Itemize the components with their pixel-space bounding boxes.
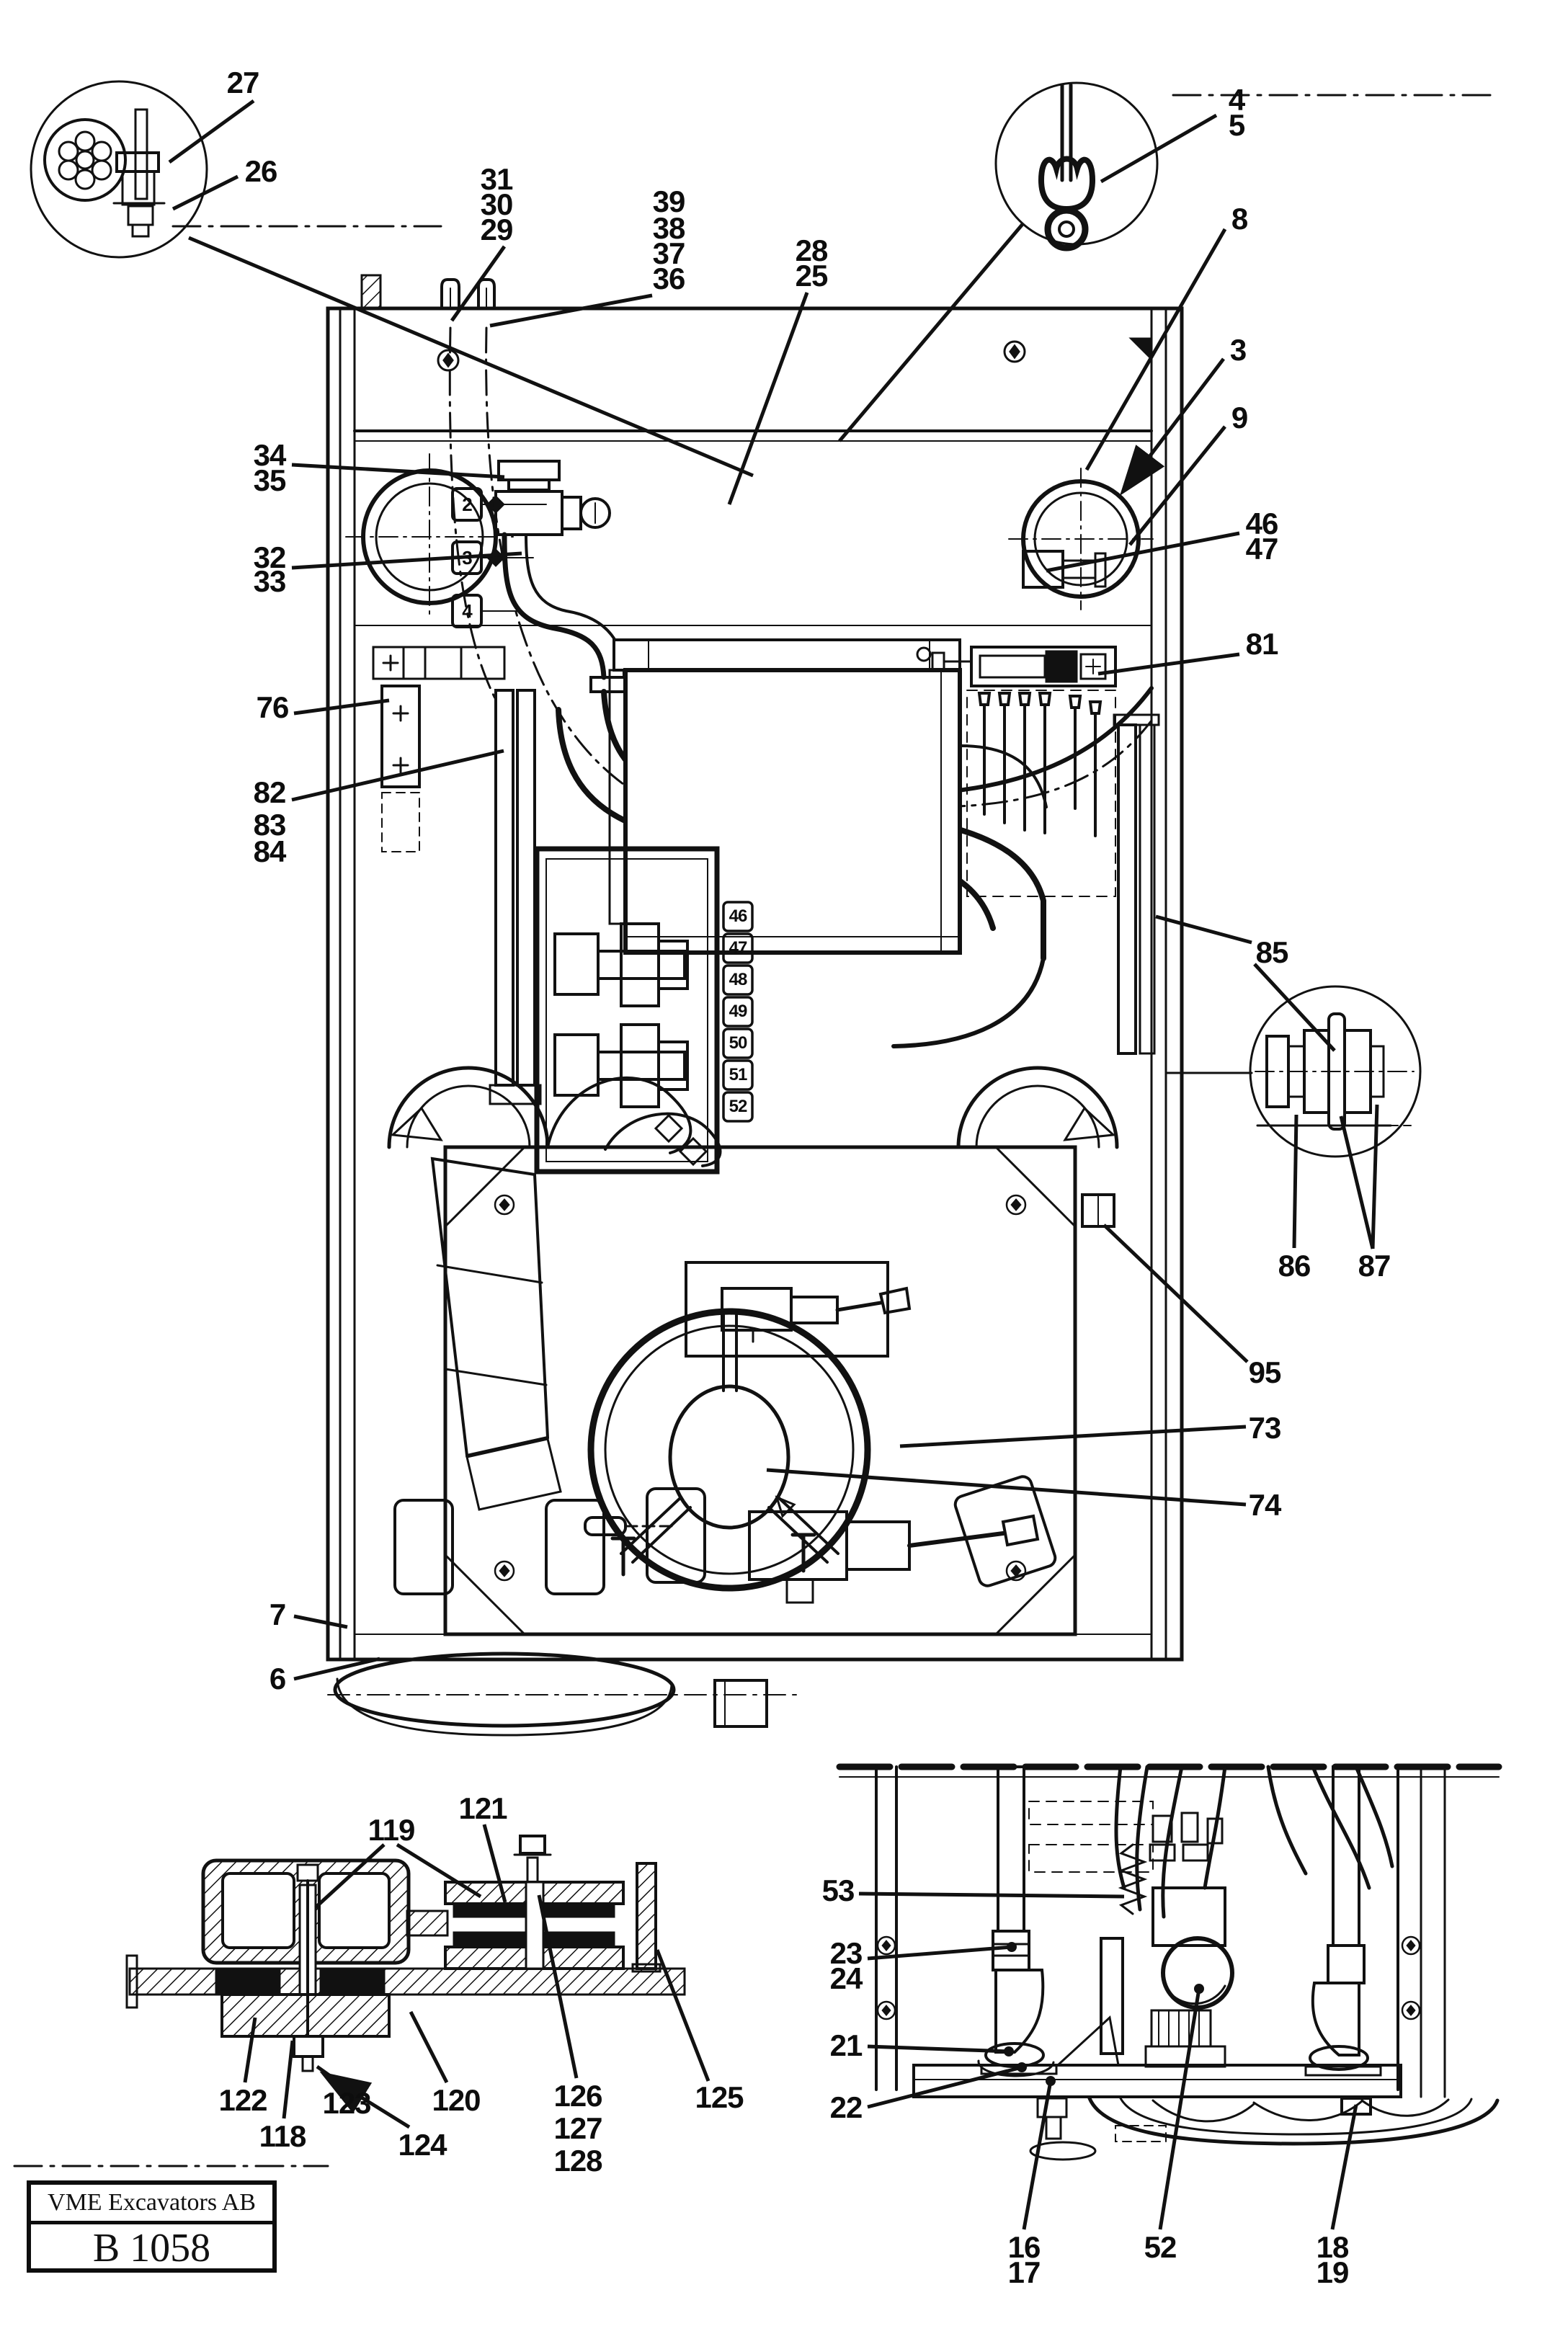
parts-diagram-page: 2726313029393837362825458393435464732338… [0,0,1568,2344]
leader-line [292,465,504,477]
callout-19: 19 [1317,2258,1349,2288]
leader-line [292,751,504,800]
callout-118: 118 [259,2121,306,2152]
callout-123: 123 [322,2088,370,2118]
leader-line [292,553,522,568]
callout-21: 21 [830,2031,863,2061]
callout-53: 53 [822,1876,855,1906]
callout-7: 7 [269,1600,285,1630]
callout-33: 33 [254,566,286,597]
callout-82: 82 [254,777,286,808]
company-name: VME Excavators AB [31,2185,272,2224]
callout-74: 74 [1249,1490,1281,1520]
callout-119: 119 [368,1815,415,1845]
leader-line [1294,1115,1296,1248]
port-number-3: 3 [462,548,471,567]
callout-128: 128 [553,2146,602,2176]
leader-line [484,1824,505,1902]
leader-dot [1007,1942,1017,1952]
leader-dot [1046,2076,1056,2086]
port-number-2: 2 [462,495,471,514]
leader-line [1101,115,1216,182]
leader-line [539,1895,576,2078]
leader-line [294,1616,347,1627]
callout-36: 36 [653,264,685,294]
leader-line [1160,1989,1199,2229]
leader-line [452,246,504,321]
leader-dot [1017,2062,1027,2072]
box-number-52: 52 [729,1098,747,1115]
leader-line [1024,2081,1051,2229]
callout-121: 121 [458,1793,507,1824]
leader-line [397,1845,481,1897]
leader-line [868,2067,1022,2107]
callout-124: 124 [398,2130,446,2160]
leader-line [1341,1116,1373,1249]
callout-22: 22 [830,2093,863,2123]
leader-line [900,1427,1246,1446]
callout-35: 35 [254,465,286,496]
callout-29: 29 [481,215,513,245]
callout-6: 6 [269,1664,285,1694]
callout-9: 9 [1231,403,1247,433]
leader-line [1255,964,1335,1051]
leader-line [729,293,807,504]
callout-76: 76 [257,692,289,723]
leader-lines-layer [0,0,1568,2344]
leader-line [1104,1225,1247,1362]
leader-line [1087,229,1225,470]
leader-line [411,2012,447,2082]
callout-17: 17 [1008,2258,1041,2288]
callout-120: 120 [432,2085,480,2116]
callout-25: 25 [796,261,828,291]
box-number-47: 47 [729,940,747,957]
leader-line [245,2018,255,2082]
leader-line [767,1470,1246,1505]
leader-line [1156,917,1252,942]
leader-line [839,223,1023,441]
callout-52: 52 [1144,2232,1177,2263]
leader-line [173,177,238,209]
callout-122: 122 [218,2085,267,2116]
leader-line [1046,533,1239,571]
callout-87: 87 [1358,1251,1391,1281]
leader-dot [1194,1984,1204,1994]
leader-line [868,1947,1012,1958]
leader-line [490,295,652,326]
leader-line [316,1845,384,1907]
callout-3: 3 [1230,335,1246,365]
box-number-50: 50 [729,1035,747,1052]
box-number-51: 51 [729,1066,747,1084]
leader-line [294,700,389,713]
callout-47: 47 [1246,534,1278,564]
leader-line [169,101,254,162]
leader-line [657,1950,708,2081]
callout-86: 86 [1278,1251,1311,1281]
leader-line [859,1894,1124,1897]
leader-dot [1004,2046,1014,2056]
leader-line [1130,427,1225,545]
callout-95: 95 [1249,1358,1281,1388]
leader-line [868,2046,1009,2051]
callout-26: 26 [245,156,277,187]
leader-line [1332,2105,1356,2229]
drawing-number: B 1058 [31,2224,272,2272]
box-number-46: 46 [729,908,747,925]
box-number-49: 49 [729,1003,747,1020]
leader-line [1373,1105,1377,1249]
port-number-4: 4 [462,602,471,620]
callout-127: 127 [553,2113,602,2144]
callout-24: 24 [830,1964,863,1994]
title-block: VME Excavators AB B 1058 [27,2180,277,2273]
callout-5: 5 [1229,110,1244,141]
callout-27: 27 [227,68,259,98]
callout-126: 126 [553,2081,602,2111]
callout-73: 73 [1249,1413,1281,1443]
leader-line [1098,654,1239,674]
callout-8: 8 [1231,204,1247,234]
box-number-48: 48 [729,971,747,989]
callout-85: 85 [1256,937,1288,968]
callout-84: 84 [254,837,286,867]
leader-line [284,2041,293,2118]
callout-81: 81 [1246,629,1278,659]
callout-125: 125 [695,2082,743,2113]
leader-line [294,1659,380,1679]
